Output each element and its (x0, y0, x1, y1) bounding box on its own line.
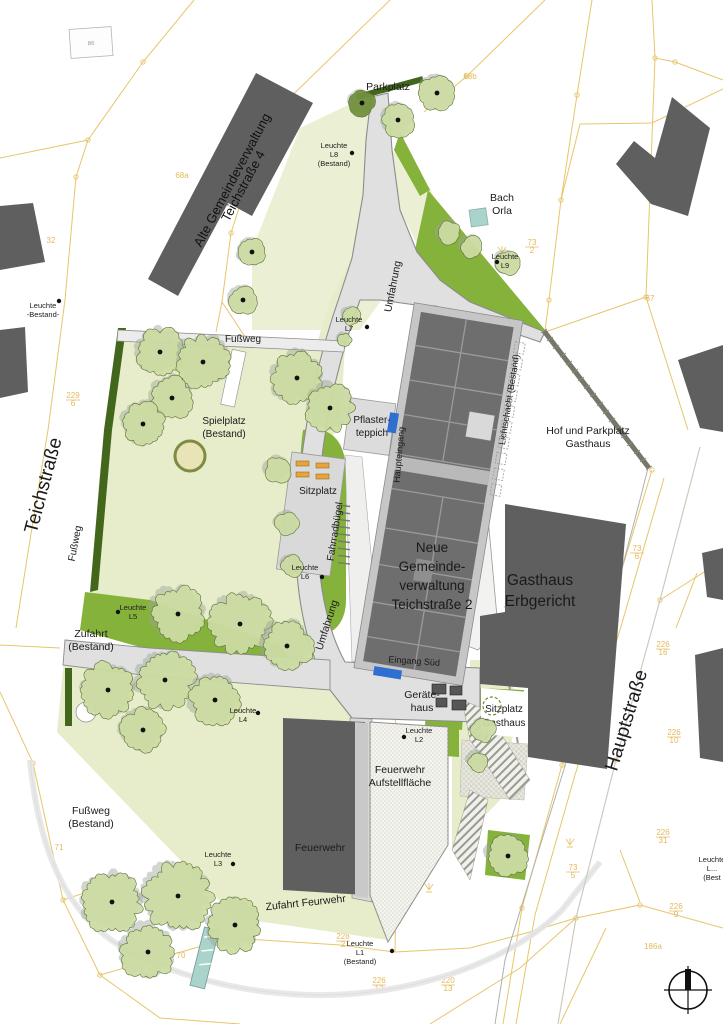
svg-text:Bach: Bach (490, 192, 514, 204)
svg-text:186a: 186a (644, 942, 662, 951)
svg-text:71: 71 (55, 843, 64, 852)
svg-text:68b: 68b (463, 72, 477, 81)
svg-text:verwaltung: verwaltung (399, 578, 464, 593)
svg-text:L...: L... (707, 864, 717, 873)
svg-text:Feuerwehr: Feuerwehr (375, 764, 426, 776)
svg-text:Leuchte: Leuchte (406, 726, 433, 735)
svg-text:Leuchte: Leuchte (120, 603, 147, 612)
svg-text:Aufstellfläche: Aufstellfläche (369, 777, 432, 789)
svg-text:(Bestand): (Bestand) (318, 159, 351, 168)
svg-text:Sitzplatz: Sitzplatz (485, 704, 523, 715)
svg-text:L7: L7 (345, 324, 353, 333)
svg-text:Leuchte: Leuchte (321, 141, 348, 150)
svg-text:Feuerwehr: Feuerwehr (295, 842, 346, 854)
svg-text:2: 2 (530, 246, 535, 255)
svg-text:Hof und Parkplatz: Hof und Parkplatz (546, 425, 629, 437)
svg-text:Leuchte: Leuchte (336, 315, 363, 324)
svg-text:Fußweg: Fußweg (72, 805, 110, 817)
svg-text:Zufahrt: Zufahrt (74, 628, 107, 640)
svg-text:32: 32 (47, 236, 56, 245)
svg-text:Leuchte: Leuchte (492, 252, 519, 261)
svg-text:(Best: (Best (703, 873, 721, 882)
svg-text:Gasthaus: Gasthaus (566, 438, 611, 450)
svg-text:Geräte-: Geräte- (404, 689, 440, 701)
svg-text:teppich: teppich (356, 428, 388, 439)
svg-text:L5: L5 (129, 612, 137, 621)
svg-text:Teichstraße 2: Teichstraße 2 (391, 597, 472, 612)
svg-text:Leuchte: Leuchte (205, 850, 232, 859)
svg-text:Leuchte: Leuchte (230, 706, 257, 715)
svg-text:86: 86 (88, 41, 96, 47)
svg-text:Sitzplatz: Sitzplatz (299, 486, 337, 497)
svg-text:Leuchte: Leuchte (347, 939, 374, 948)
svg-text:L9: L9 (501, 261, 509, 270)
svg-text:Gemeinde-: Gemeinde- (399, 559, 466, 574)
svg-text:(Bestand): (Bestand) (202, 429, 245, 440)
svg-text:Erbgericht: Erbgericht (505, 593, 576, 610)
svg-text:(Bestand): (Bestand) (68, 641, 114, 653)
svg-text:Orla: Orla (492, 205, 512, 217)
svg-text:haus: haus (411, 702, 434, 714)
svg-text:L3: L3 (214, 859, 222, 868)
svg-text:68a: 68a (175, 171, 189, 180)
svg-text:67: 67 (646, 294, 655, 303)
svg-text:Pflaster-: Pflaster- (353, 415, 390, 426)
svg-text:Leuchte: Leuchte (30, 301, 57, 310)
svg-text:Fußweg: Fußweg (225, 334, 261, 345)
svg-text:Parkplatz: Parkplatz (366, 81, 410, 93)
svg-text:Gasthaus: Gasthaus (507, 572, 574, 589)
svg-text:-Bestand-: -Bestand- (27, 310, 60, 319)
svg-text:L1: L1 (356, 948, 364, 957)
svg-text:L8: L8 (330, 150, 338, 159)
svg-text:Neue: Neue (416, 540, 448, 555)
svg-text:(Bestand): (Bestand) (68, 818, 114, 830)
svg-text:70: 70 (177, 951, 186, 960)
svg-text:L2: L2 (415, 735, 423, 744)
svg-text:L4: L4 (239, 715, 247, 724)
svg-text:L6: L6 (301, 572, 309, 581)
svg-text:Spielplatz: Spielplatz (202, 416, 245, 427)
svg-text:Leuchte: Leuchte (292, 563, 319, 572)
svg-text:(Bestand): (Bestand) (344, 957, 377, 966)
svg-text:Leuchte: Leuchte (699, 855, 723, 864)
